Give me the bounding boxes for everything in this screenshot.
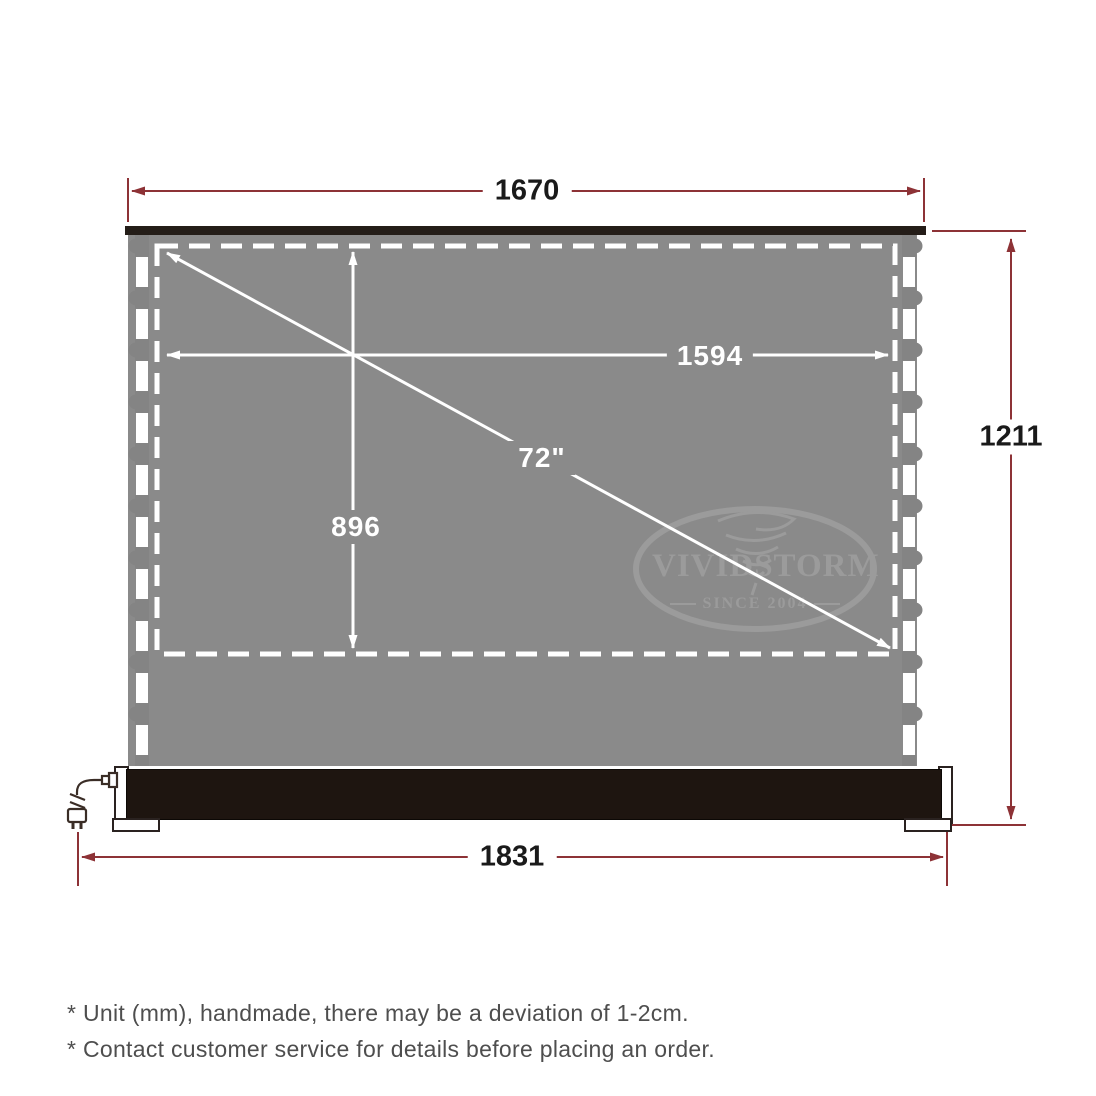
- label-viewing-width: 1594: [667, 339, 753, 373]
- right-rail: [903, 235, 915, 766]
- dim-total-height-line: [932, 231, 1026, 825]
- label-total-height: 1211: [968, 420, 1055, 455]
- notes: * Unit (mm), handmade, there may be a de…: [67, 995, 715, 1067]
- left-rail: [136, 235, 148, 766]
- label-top-width: 1670: [483, 174, 572, 209]
- note-unit: * Unit (mm), handmade, there may be a de…: [67, 995, 715, 1031]
- diagram-lines: [0, 0, 1096, 1096]
- dimension-diagram: VIVID STORM SINCE 2004: [0, 0, 1096, 1096]
- label-viewing-height: 896: [321, 510, 391, 544]
- label-diagonal: 72": [508, 441, 575, 475]
- note-contact: * Contact customer service for details b…: [67, 1031, 715, 1067]
- label-base-width: 1831: [468, 840, 557, 875]
